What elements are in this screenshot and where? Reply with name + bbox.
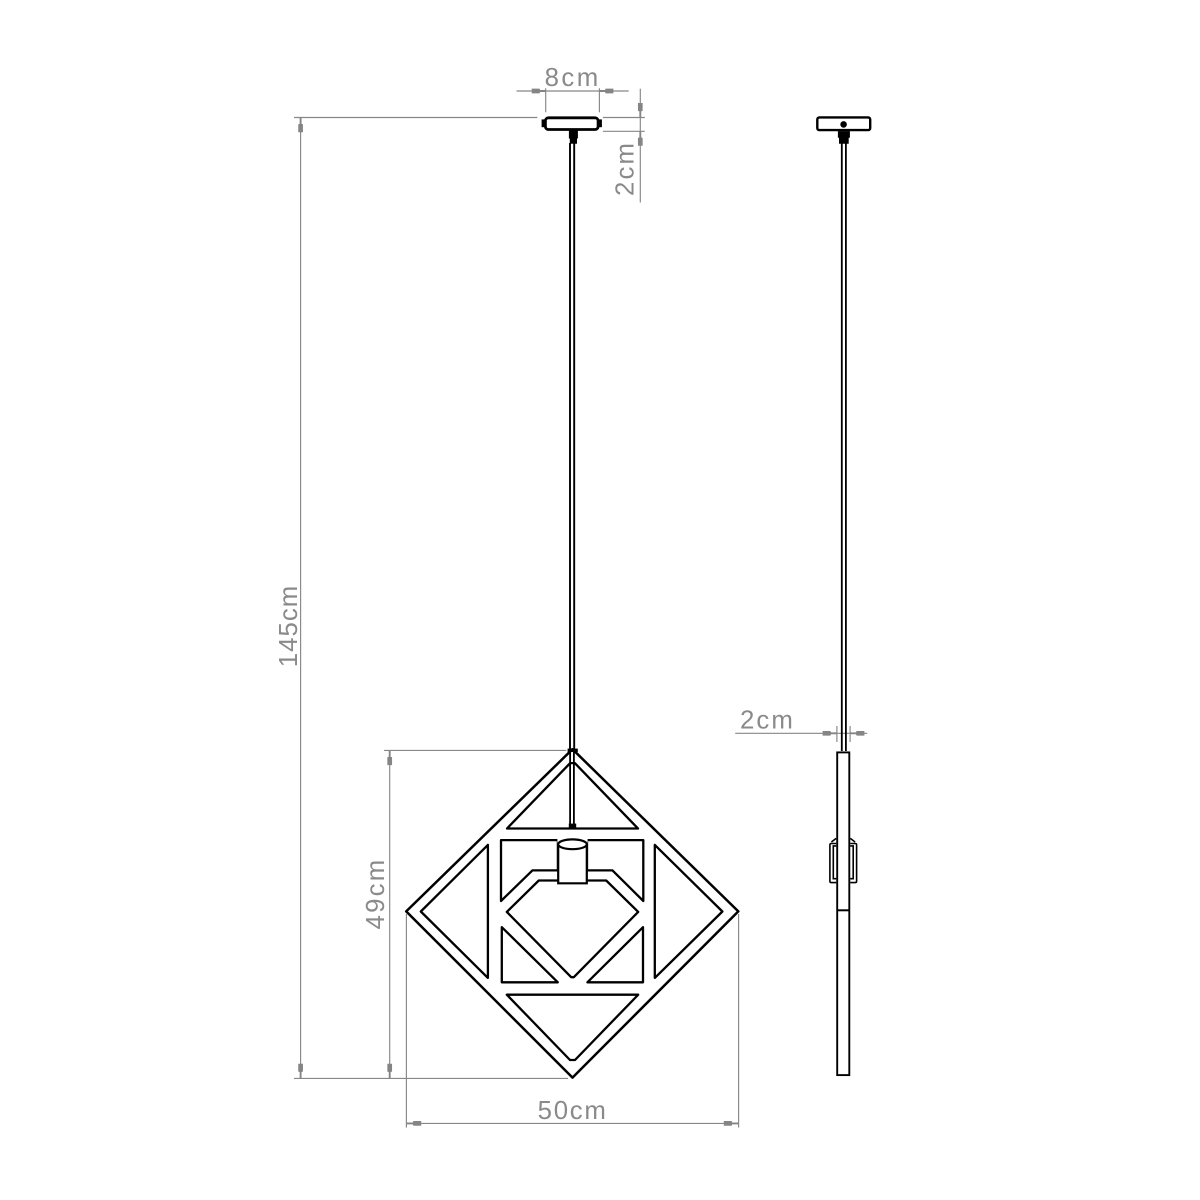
svg-text:145cm: 145cm: [275, 585, 303, 667]
svg-text:8cm: 8cm: [545, 64, 601, 92]
svg-text:49cm: 49cm: [362, 858, 390, 930]
svg-text:2cm: 2cm: [740, 707, 795, 735]
svg-text:50cm: 50cm: [538, 1097, 608, 1125]
svg-text:2cm: 2cm: [611, 141, 639, 196]
